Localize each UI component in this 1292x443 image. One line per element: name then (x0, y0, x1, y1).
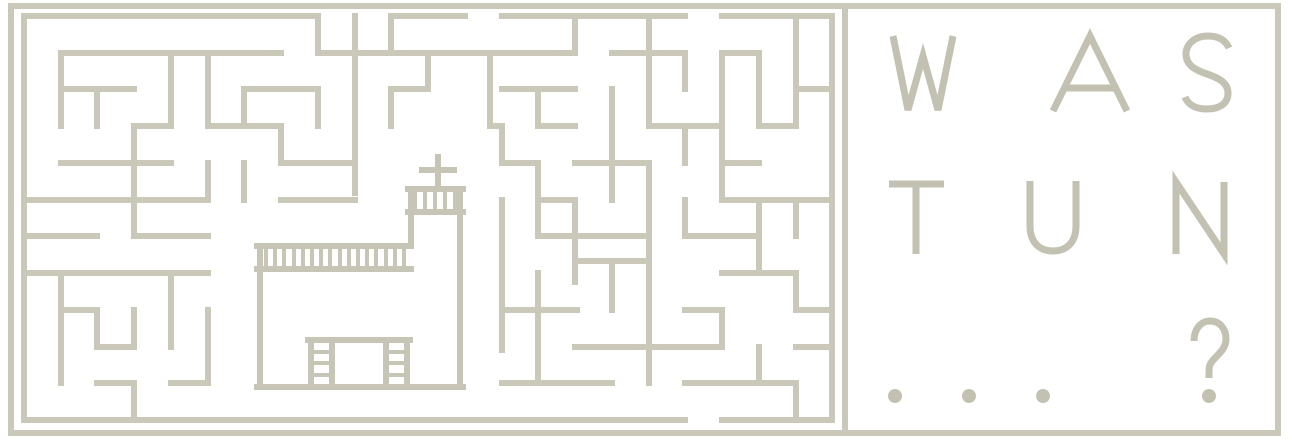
letter-dot (1036, 389, 1050, 403)
headline-letter-dot (962, 389, 976, 403)
headline-letter-U (1030, 181, 1076, 251)
headline-letter-dot (1036, 389, 1050, 403)
headline (888, 36, 1229, 403)
letter-dot (888, 389, 902, 403)
headline-letter-T (889, 184, 944, 254)
headline-letter-N (1176, 182, 1224, 254)
headline-letter-question-mark (1194, 321, 1226, 403)
frame (11, 6, 1278, 433)
letter-stroke (1030, 181, 1076, 251)
maze-illustration (24, 16, 832, 420)
scene-graphic (0, 0, 1292, 443)
letter-dot (962, 389, 976, 403)
letter-stroke (1053, 36, 1127, 111)
letter-dot (1202, 389, 1216, 403)
letter-stroke (893, 36, 953, 110)
letter-stroke (1185, 36, 1229, 109)
headline-letter-S (1185, 36, 1229, 109)
letter-stroke (1176, 182, 1224, 254)
headline-letter-dot (888, 389, 902, 403)
headline-letter-A (1053, 36, 1127, 111)
poster: WAS TUN ...? (0, 0, 1292, 443)
headline-letter-W (893, 36, 953, 110)
church-illustration (257, 157, 463, 387)
letter-stroke (1194, 321, 1226, 378)
letter-stroke (889, 184, 944, 254)
outer-border (11, 6, 1278, 433)
